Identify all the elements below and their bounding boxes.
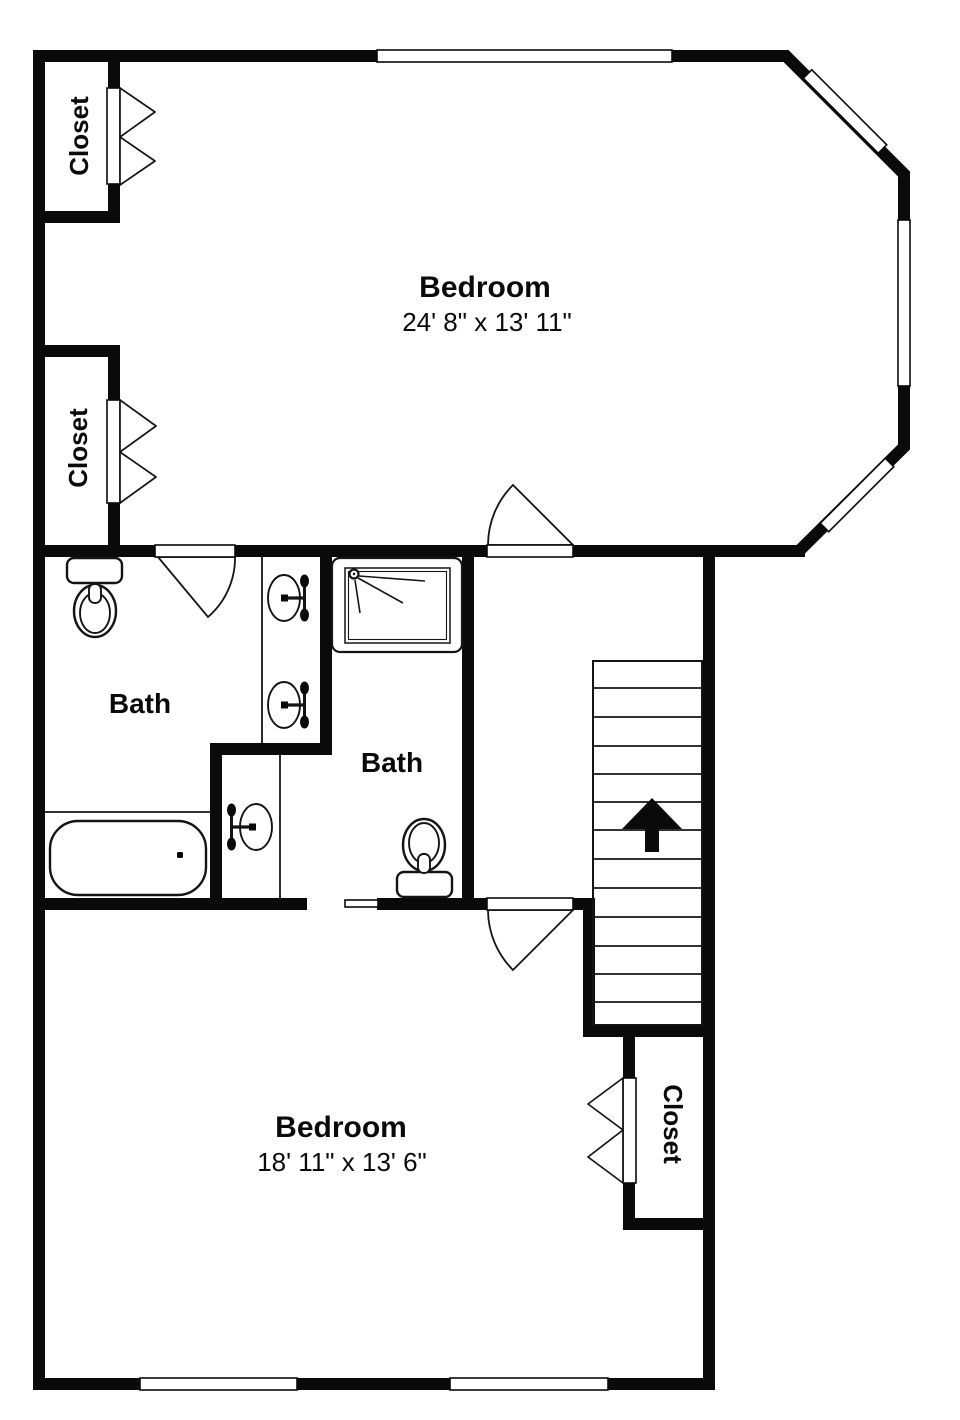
wall-closet3-south bbox=[623, 1218, 715, 1230]
room-label-closet-mid-left: Closet bbox=[63, 408, 93, 488]
room-label-bath-left: Bath bbox=[109, 688, 171, 719]
window-marker bbox=[377, 50, 672, 62]
window-marker bbox=[450, 1378, 608, 1390]
room-label-closet-lower-right: Closet bbox=[658, 1084, 688, 1164]
floor-plan-page: Bedroom 24' 8" x 13' 11" Bath Bath Bedro… bbox=[0, 0, 960, 1420]
room-dim-bedroom-lower: 18' 11" x 13' 6" bbox=[257, 1147, 427, 1177]
wall-stair-south bbox=[583, 1025, 715, 1037]
tub-drain bbox=[177, 852, 183, 858]
sink-icon bbox=[268, 575, 309, 622]
bifold-panel bbox=[107, 400, 120, 503]
pocket-door-icon bbox=[345, 900, 378, 907]
room-dim-bedroom-upper: 24' 8" x 13' 11" bbox=[402, 307, 572, 337]
wall-vanity-nook-north bbox=[210, 743, 332, 755]
wall-closet2-east bbox=[108, 502, 120, 545]
wall-bedroom-south bbox=[33, 545, 155, 557]
wall-closet1-south bbox=[33, 211, 120, 223]
wall-bath-east bbox=[462, 545, 474, 910]
up-arrow-stem bbox=[645, 828, 659, 852]
room-label-closet-upper-left: Closet bbox=[64, 96, 94, 176]
wall-closet2-north bbox=[33, 345, 120, 357]
door-opening bbox=[487, 898, 573, 910]
shower-icon bbox=[332, 558, 462, 652]
wall-vanity-nook-west bbox=[210, 743, 222, 910]
wall-hall-south bbox=[573, 898, 595, 910]
room-label-bedroom-lower: Bedroom bbox=[275, 1111, 407, 1144]
bifold-panel bbox=[107, 88, 120, 184]
wall-bath-partition bbox=[320, 545, 332, 755]
wall-closet3-west bbox=[623, 1183, 635, 1219]
bifold-panel bbox=[623, 1078, 636, 1183]
sink-icon bbox=[268, 682, 309, 729]
door-opening bbox=[487, 545, 573, 557]
wall-closet1-east bbox=[108, 184, 120, 212]
sink-icon bbox=[227, 804, 272, 851]
wall-bottom-segment bbox=[608, 1378, 715, 1390]
wall-closet3-west bbox=[623, 1037, 635, 1078]
wall-bedroom-south bbox=[235, 545, 487, 557]
wall-right-exterior bbox=[703, 545, 715, 1390]
wall-closet1-east bbox=[108, 62, 120, 89]
wall-bottom-segment bbox=[33, 1378, 140, 1390]
wall-bath-south bbox=[377, 898, 487, 910]
window-marker bbox=[140, 1378, 297, 1390]
wall-bedroom-south bbox=[573, 545, 805, 557]
floor-plan: Bedroom 24' 8" x 13' 11" Bath Bath Bedro… bbox=[0, 0, 960, 1420]
window-marker bbox=[898, 220, 910, 386]
wall-closet2-east bbox=[108, 357, 120, 401]
wall-bottom-segment bbox=[297, 1378, 450, 1390]
door-opening bbox=[155, 545, 235, 557]
wall-bath-south bbox=[33, 898, 307, 910]
room-label-bath-middle: Bath bbox=[361, 747, 423, 778]
bathtub-icon bbox=[45, 812, 211, 895]
wall-left-exterior bbox=[33, 50, 45, 1390]
room-label-bedroom-upper: Bedroom bbox=[419, 271, 551, 304]
